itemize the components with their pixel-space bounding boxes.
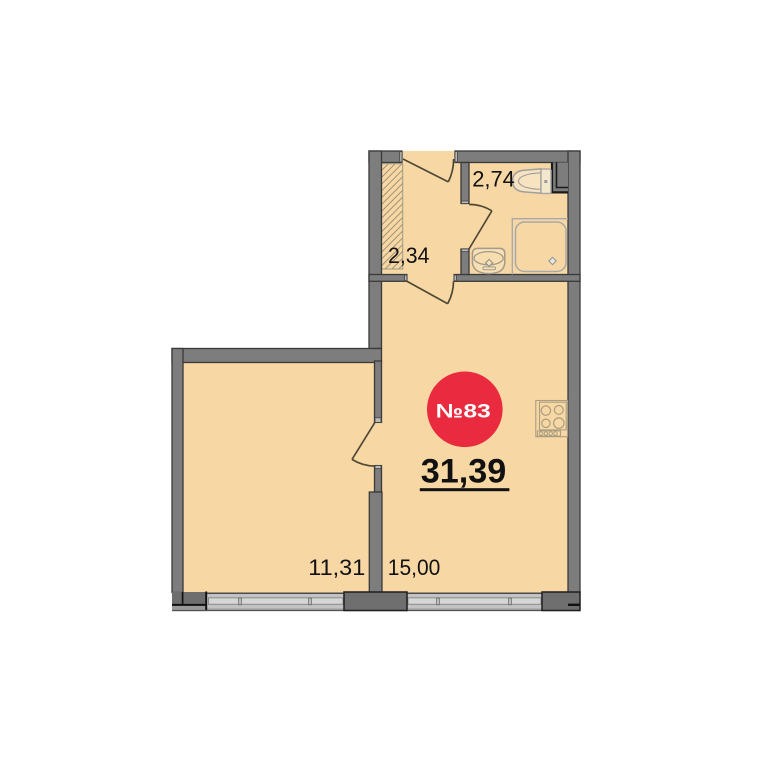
svg-text:11,31: 11,31 — [308, 555, 365, 580]
svg-text:2,74: 2,74 — [472, 166, 515, 191]
svg-text:№83: №83 — [436, 400, 491, 422]
svg-text:2,34: 2,34 — [388, 243, 430, 268]
svg-text:31,39: 31,39 — [421, 453, 507, 491]
svg-text:15,00: 15,00 — [388, 555, 441, 580]
